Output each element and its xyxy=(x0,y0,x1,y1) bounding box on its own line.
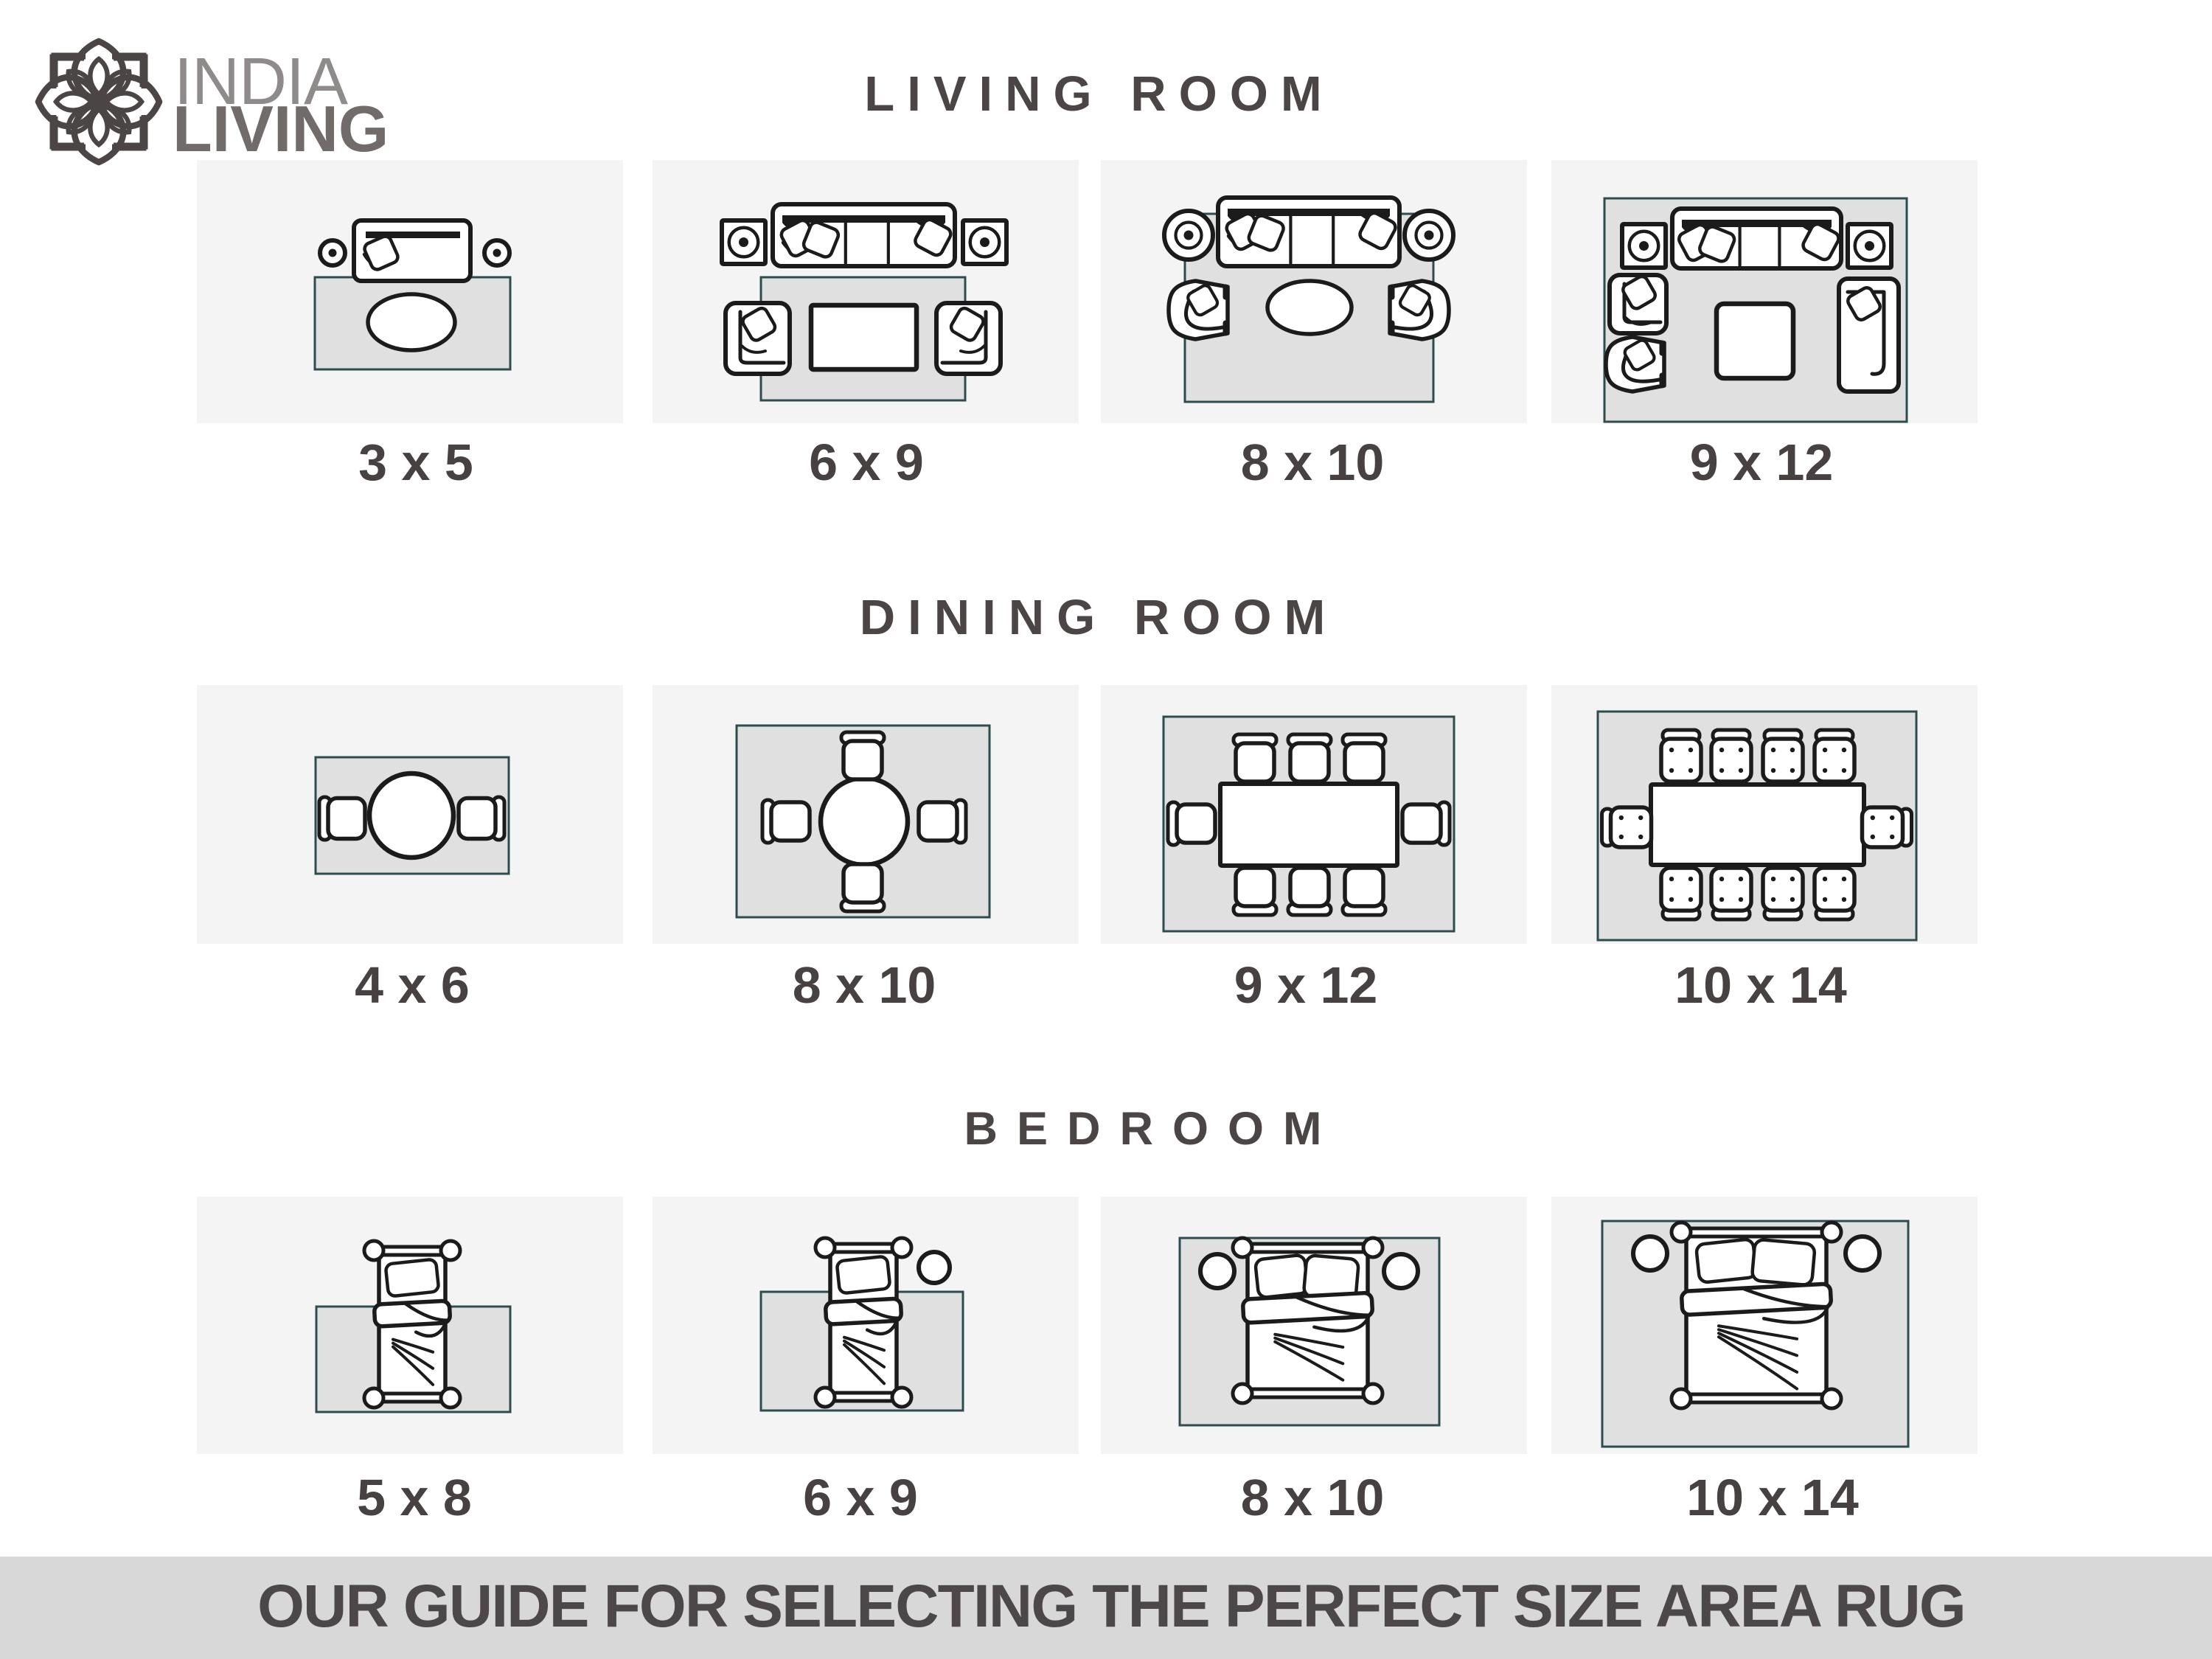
svg-text:6 x 9: 6 x 9 xyxy=(803,1469,918,1526)
svg-text:8 x 10: 8 x 10 xyxy=(793,956,936,1014)
svg-text:LIVING ROOM: LIVING ROOM xyxy=(864,66,1334,122)
svg-text:8 x 10: 8 x 10 xyxy=(1241,1469,1385,1526)
svg-text:6 x 9: 6 x 9 xyxy=(809,434,924,491)
svg-text:DINING ROOM: DINING ROOM xyxy=(860,590,1338,645)
svg-text:10 x 14: 10 x 14 xyxy=(1674,956,1847,1014)
svg-text:BEDROOM: BEDROOM xyxy=(964,1103,1341,1155)
svg-text:OUR GUIDE FOR SELECTING THE PE: OUR GUIDE FOR SELECTING THE PERFECT SIZE… xyxy=(257,1573,1965,1640)
svg-text:10 x 14: 10 x 14 xyxy=(1686,1469,1859,1526)
svg-text:LIVING: LIVING xyxy=(173,92,389,165)
svg-text:4 x 6: 4 x 6 xyxy=(355,956,470,1014)
svg-text:9 x 12: 9 x 12 xyxy=(1690,434,1834,491)
svg-text:8 x 10: 8 x 10 xyxy=(1241,434,1385,491)
svg-text:9 x 12: 9 x 12 xyxy=(1234,956,1378,1014)
svg-text:5 x 8: 5 x 8 xyxy=(357,1469,472,1526)
svg-text:3 x 5: 3 x 5 xyxy=(358,434,473,491)
